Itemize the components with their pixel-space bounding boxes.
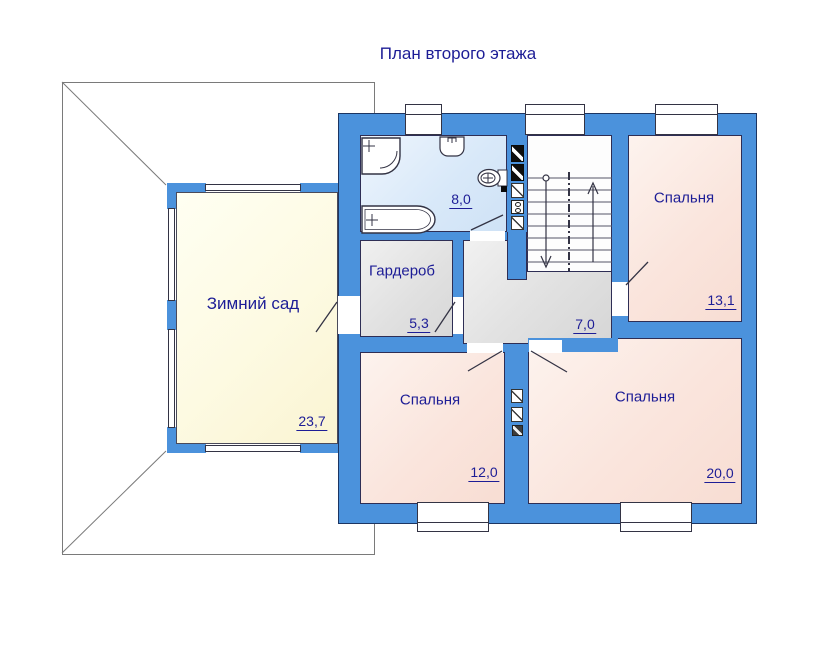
door-opening-bedroom1 (612, 282, 628, 316)
vent-shaft-icon (511, 216, 524, 230)
window-icon (205, 184, 301, 191)
area-hall: 7,0 (573, 316, 596, 332)
door-opening-bedroom3 (529, 340, 562, 353)
area-winter-garden: 23,7 (296, 413, 327, 429)
room-bathroom (360, 135, 507, 232)
window-icon (417, 502, 489, 532)
label-winter-garden: Зимний сад (207, 294, 299, 314)
area-bathroom: 8,0 (449, 191, 472, 207)
room-winter-garden (176, 192, 338, 444)
wg-wall-left-1 (167, 183, 176, 209)
area-bedroom-bottom-right: 20,0 (704, 465, 735, 481)
door-opening-bedroom2 (467, 343, 503, 353)
floorplan-canvas: План второго этажа (0, 0, 830, 664)
area-wardrobe: 5,3 (407, 315, 430, 331)
wall-stub-stairs (507, 232, 527, 280)
vent-shaft-icon (512, 425, 523, 436)
label-wardrobe: Гардероб (369, 263, 435, 280)
label-bedroom-bottom-right: Спальня (615, 389, 675, 406)
vent-shaft-icon (511, 389, 523, 403)
window-icon (655, 104, 718, 135)
vent-shaft-icon (511, 183, 524, 198)
wg-wall-bottom-right (300, 444, 338, 453)
vent-shaft-icon (511, 407, 523, 422)
area-bedroom-top-right: 13,1 (705, 292, 736, 308)
window-icon (168, 329, 175, 428)
window-icon (405, 104, 442, 135)
page-title: План второго этажа (380, 44, 537, 64)
vent-shaft-icon (511, 200, 524, 214)
area-bedroom-bottom-left: 12,0 (468, 464, 499, 480)
label-bedroom-top-right: Спальня (654, 190, 714, 207)
room-stairs (527, 135, 612, 272)
door-opening-winter-garden (338, 296, 360, 334)
door-opening-bathroom (470, 231, 505, 241)
wg-wall-top-right (300, 183, 338, 192)
vent-shaft-icon (511, 164, 524, 181)
window-icon (525, 104, 585, 135)
door-opening-wardrobe (453, 297, 463, 334)
wg-wall-left-3 (167, 427, 176, 453)
window-icon (168, 208, 175, 301)
vent-shaft-icon (511, 145, 524, 162)
wg-wall-left-2 (167, 300, 176, 330)
window-icon (205, 445, 301, 452)
window-icon (620, 502, 692, 532)
label-bedroom-bottom-left: Спальня (400, 392, 460, 409)
